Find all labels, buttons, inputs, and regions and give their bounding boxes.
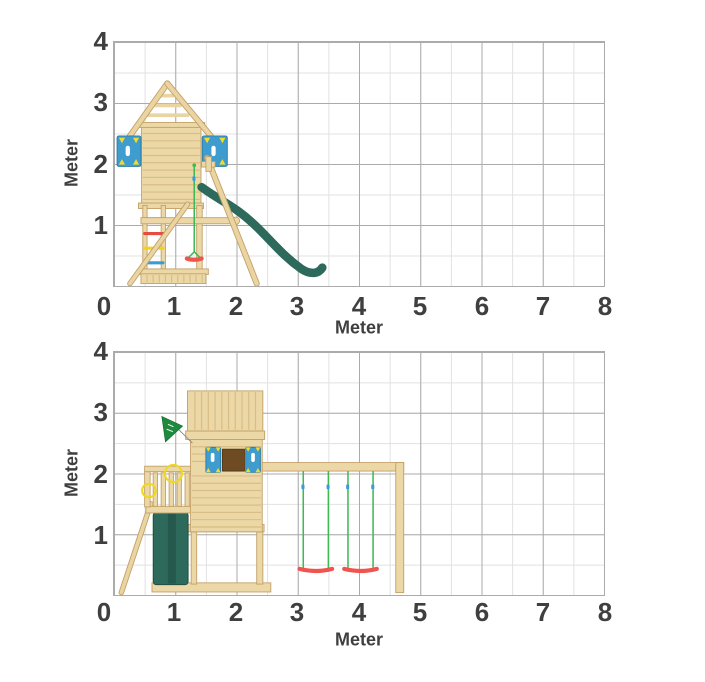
plot-area-front-view (113, 351, 605, 596)
y-axis-label: Meter (62, 139, 83, 187)
x-tick: 8 (585, 292, 625, 320)
y-tick: 3 (58, 398, 108, 426)
tarp-slide-bay (153, 512, 188, 584)
x-tick: 5 (400, 292, 440, 320)
x-axis-label: Meter (335, 630, 383, 651)
x-axis-label: Meter (335, 318, 383, 339)
x-tick: 0 (84, 292, 124, 320)
under-frame-and-ladder (139, 205, 240, 283)
x-tick: 6 (462, 292, 502, 320)
x-tick: 1 (154, 598, 194, 626)
swing-1 (300, 471, 332, 571)
window-shutter-left (206, 447, 221, 472)
x-tick: 4 (339, 598, 379, 626)
x-tick: 5 (400, 598, 440, 626)
climbing-panel-left (117, 136, 141, 167)
support-beam-left (121, 504, 150, 593)
platform-railing (142, 465, 195, 513)
x-tick: 4 (339, 292, 379, 320)
playtower-side-illustration (114, 42, 604, 286)
playtower-front-illustration (114, 352, 604, 595)
x-tick: 2 (216, 598, 256, 626)
plot-area-side-view (113, 41, 605, 287)
dimension-diagram-page: 4 3 2 1 0 1 2 3 4 5 6 7 8 Meter Meter (0, 0, 705, 682)
x-tick: 8 (585, 598, 625, 626)
x-tick: 2 (216, 292, 256, 320)
x-tick: 3 (277, 598, 317, 626)
x-tick: 3 (277, 292, 317, 320)
y-tick: 4 (58, 27, 108, 55)
swing-set (262, 463, 403, 593)
swing-2 (344, 471, 376, 571)
x-tick: 7 (523, 292, 563, 320)
y-tick: 4 (58, 337, 108, 365)
x-tick: 1 (154, 292, 194, 320)
y-axis-label: Meter (62, 449, 83, 497)
x-tick: 6 (462, 598, 502, 626)
slide (202, 187, 323, 273)
x-tick: 7 (523, 598, 563, 626)
y-tick: 1 (58, 211, 108, 239)
window-opening (222, 449, 244, 471)
x-tick: 0 (84, 598, 124, 626)
y-tick: 1 (58, 521, 108, 549)
y-tick: 3 (58, 88, 108, 116)
window-shutter-right (246, 447, 261, 472)
tower-front (186, 391, 265, 532)
